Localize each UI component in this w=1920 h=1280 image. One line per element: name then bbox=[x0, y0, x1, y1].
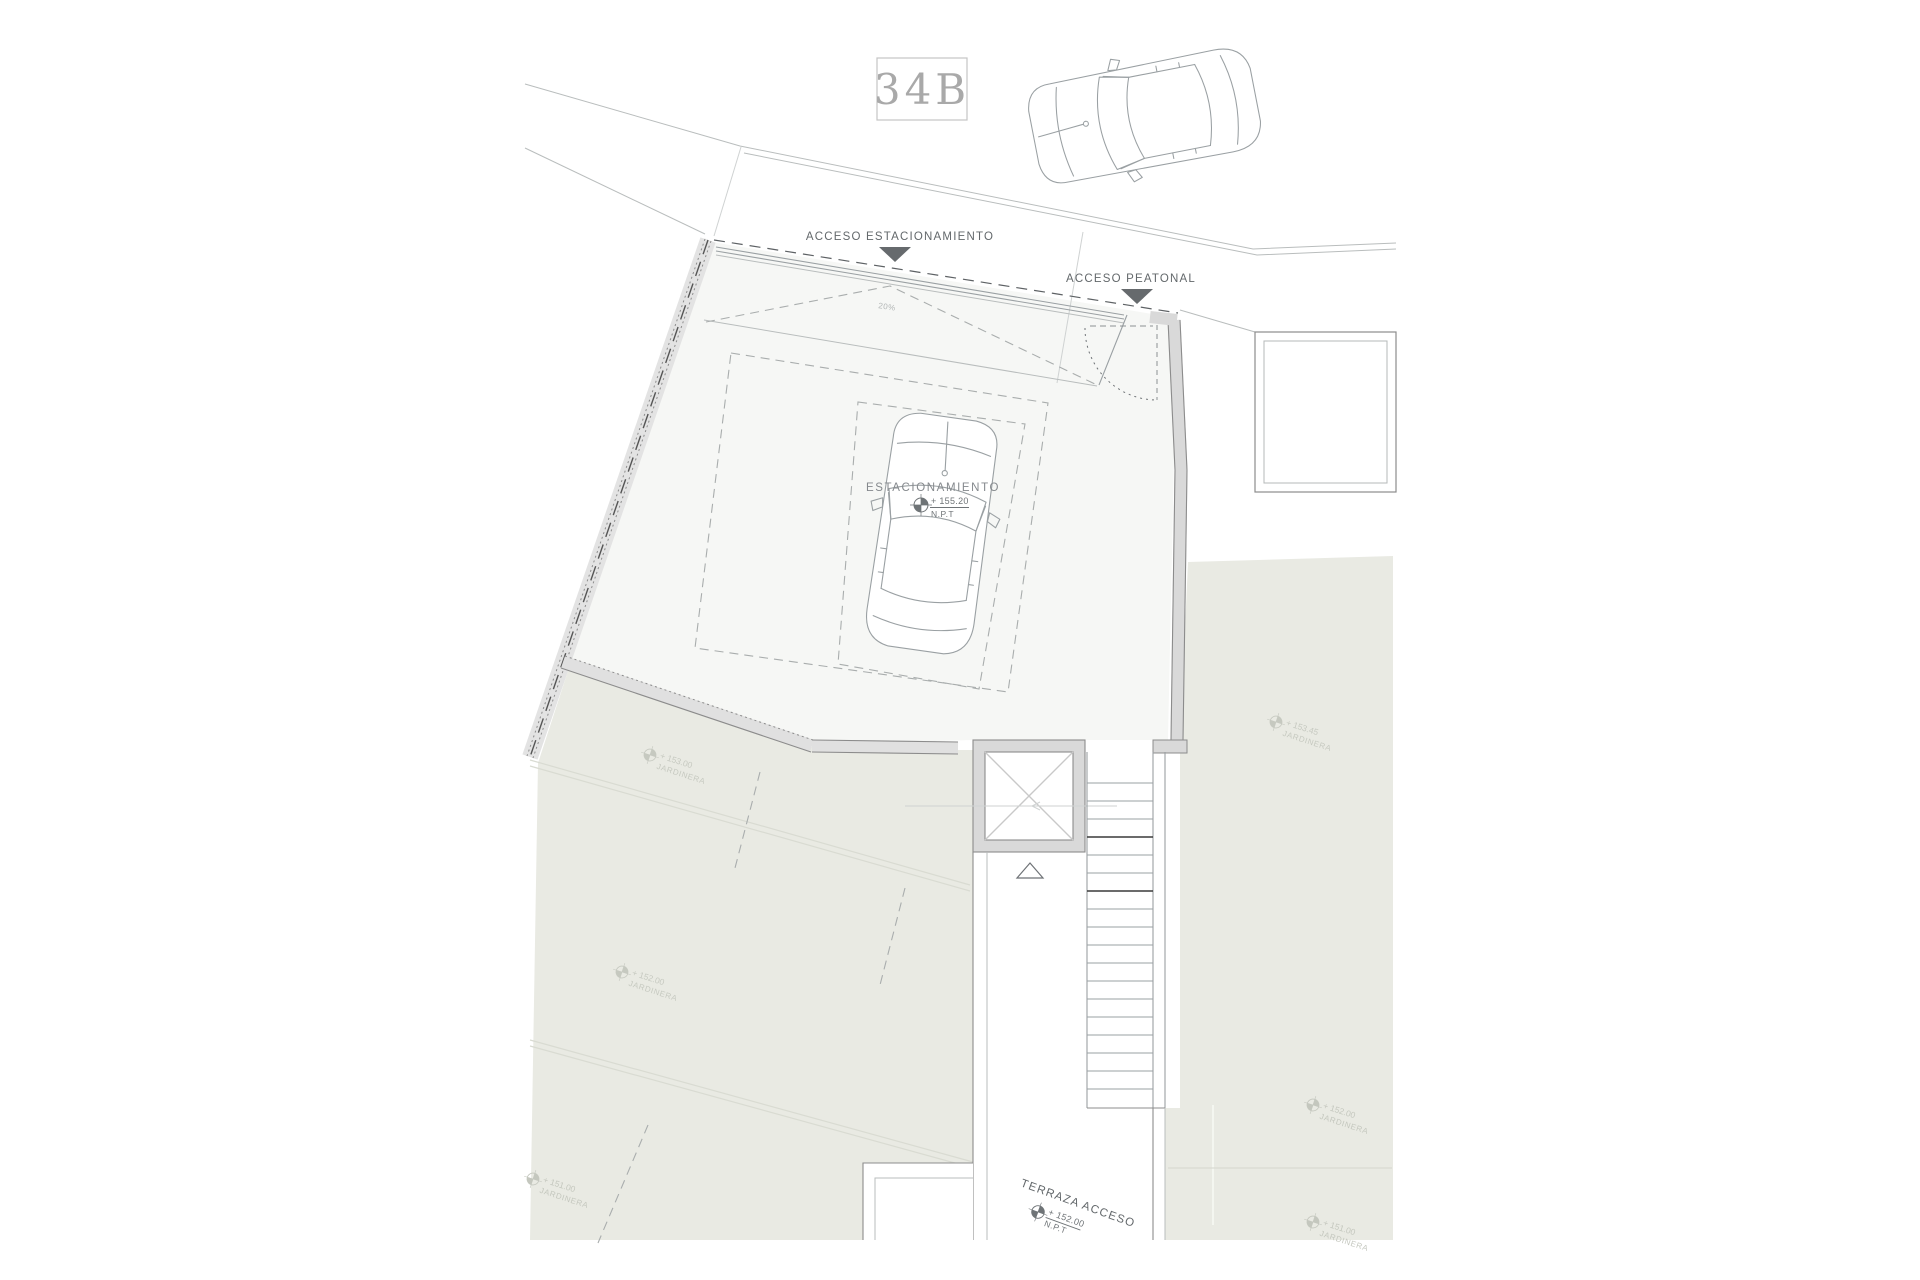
green-area-right bbox=[1165, 556, 1393, 1240]
unit-title-box: 34B bbox=[874, 58, 970, 120]
adjacent-slab bbox=[1255, 332, 1396, 492]
acceso-peatonal-label: ACCESO PEATONAL bbox=[1066, 273, 1196, 285]
estacionamiento-label: ESTACIONAMIENTO bbox=[866, 482, 1000, 494]
svg-text:+ 155.20: + 155.20 bbox=[931, 496, 969, 506]
svg-text:N.P.T: N.P.T bbox=[931, 509, 954, 519]
acceso-estacionamiento-label: ACCESO ESTACIONAMIENTO bbox=[806, 231, 994, 243]
site-plan-canvas: + 153.00 JARDINERA + 152.00 JARDINERA + … bbox=[0, 0, 1920, 1280]
terrace-notch bbox=[863, 1163, 973, 1240]
unit-title: 34B bbox=[874, 65, 970, 114]
